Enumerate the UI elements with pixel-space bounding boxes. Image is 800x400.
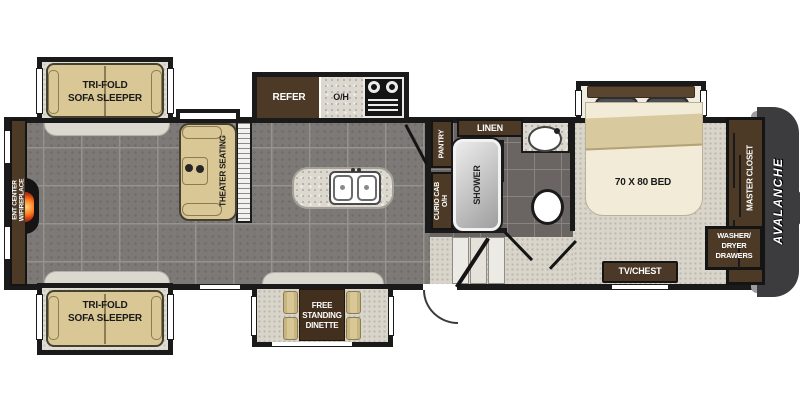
dinette-label-line1: FREE: [299, 301, 345, 311]
oven-grill-icon: [368, 99, 398, 113]
bed-label: 70 X 80 BED: [585, 177, 701, 190]
burner-icon: [368, 81, 380, 93]
window: [272, 342, 352, 346]
theater-armrest: [182, 126, 222, 139]
washer-label-line3: DRAWERS: [707, 251, 761, 261]
dinette-chair: [283, 291, 298, 314]
drain-icon: [364, 185, 369, 190]
shower-label: SHOWER: [472, 165, 482, 204]
window: [251, 296, 257, 336]
theater-slide-wall: [176, 109, 240, 123]
linen-label: LINEN: [457, 123, 523, 134]
toilet: [531, 189, 564, 225]
overhead-cabinet-label: O/H: [321, 92, 361, 103]
pantry-label: PANTRY: [438, 130, 447, 159]
faucet-icon: [357, 168, 361, 172]
sofa-top-label-line2: SOFA SLEEPER: [52, 93, 158, 106]
burner-icon: [386, 81, 398, 93]
dinette-chair: [346, 317, 361, 340]
ent-center-label-line1: ENT CENTER: [12, 179, 19, 222]
washer-label-line2: DRYER: [707, 241, 761, 251]
window: [167, 294, 174, 340]
washer-label-line1: WASHER/: [707, 231, 761, 241]
brand-logo: AVALANCHE: [772, 157, 786, 244]
cup-holder-icon: [196, 165, 204, 173]
master-closet-label: MASTER CLOSET: [745, 145, 754, 211]
theater-armrest: [182, 203, 222, 216]
dinette-chair: [346, 291, 361, 314]
drain-icon: [340, 185, 345, 190]
window: [575, 90, 582, 116]
bedroom-wall: [570, 121, 575, 231]
window: [388, 296, 394, 336]
closet-detail: [739, 155, 741, 217]
sofa-bottom-label-line2: SOFA SLEEPER: [52, 313, 158, 326]
tv-chest-label: TV/CHEST: [602, 266, 678, 277]
refer-label: REFER: [257, 92, 321, 105]
cup-holder-icon: [185, 164, 193, 172]
window: [36, 294, 43, 340]
theater-seating-label: THEATER SEATING: [218, 135, 227, 206]
dinette-label-line3: DINETTE: [299, 321, 345, 331]
dinette-label-line2: STANDING: [299, 311, 345, 321]
ent-center-label-line2: W/FIREPLACE: [19, 179, 26, 222]
bed-blanket: [585, 113, 703, 150]
curio-label-line1: CURIO CAB: [434, 182, 442, 220]
faucet-icon: [554, 128, 560, 134]
door-swing-arc: [423, 290, 458, 324]
sofa-top-label-line1: TRI-FOLD: [52, 80, 158, 93]
step-tread: [488, 237, 505, 284]
closet-detail: [733, 133, 735, 188]
window: [200, 285, 240, 289]
slide-mechanism: [236, 121, 252, 223]
dinette-chair: [283, 317, 298, 340]
window: [36, 68, 43, 114]
sofa-bottom-label-line1: TRI-FOLD: [52, 300, 158, 313]
window: [167, 68, 174, 114]
curio-label-line2: O/H: [442, 182, 450, 220]
slide-floor-edge: [44, 121, 170, 136]
floor-plan: ENT CENTER W/FIREPLACE THEATER SEATING T…: [0, 0, 800, 400]
bed-mattress: [585, 102, 703, 216]
window: [612, 285, 668, 289]
faucet-icon: [351, 168, 355, 172]
